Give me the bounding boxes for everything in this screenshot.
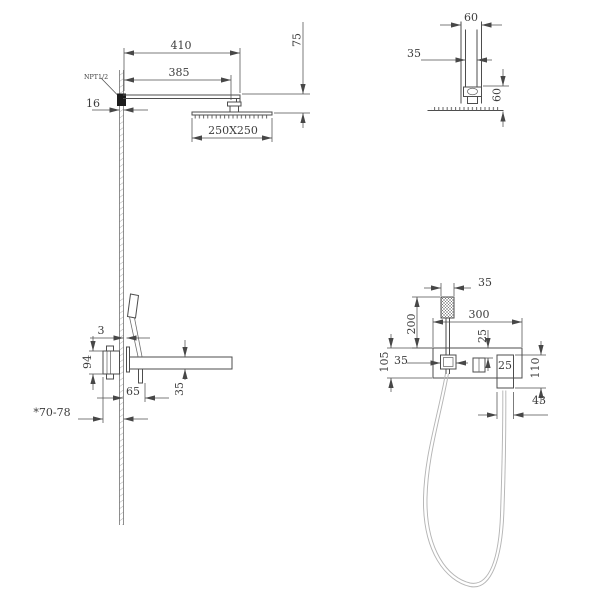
dim-outer-width: 60 bbox=[464, 11, 478, 24]
handle-holder-inner bbox=[444, 358, 454, 367]
dim-elbow-width: 43 bbox=[532, 394, 546, 407]
wall-section bbox=[120, 70, 124, 525]
valve-body bbox=[103, 351, 120, 374]
supply-stub bbox=[107, 374, 114, 379]
dim-arm-length: 410 bbox=[171, 39, 192, 52]
wall-hatch bbox=[120, 70, 124, 525]
dim-spout-height: 35 bbox=[173, 382, 186, 396]
lever-stem bbox=[130, 317, 139, 357]
handle-holder bbox=[441, 355, 457, 369]
lever-stem bbox=[135, 318, 143, 357]
dim-plate-height: 105 bbox=[378, 352, 391, 373]
dim-wall-to-head: 385 bbox=[169, 66, 190, 79]
lever-handle bbox=[128, 294, 139, 318]
rain-shower-dimensions: 410 385 75 16 NPT1/2 250X250 bbox=[84, 22, 310, 142]
head-flange bbox=[228, 102, 242, 106]
dim-wall-thickness: 16 bbox=[86, 97, 100, 110]
trim-plate bbox=[127, 347, 130, 372]
dim-handle-length: 200 bbox=[405, 314, 418, 335]
dim-head-drop: 75 bbox=[291, 33, 304, 47]
dim-pipe-width: 35 bbox=[407, 47, 421, 60]
hand-shower-head bbox=[441, 297, 454, 318]
dim-drop-height: 60 bbox=[491, 88, 504, 102]
dim-outlet-drop: 25 bbox=[476, 329, 489, 343]
dim-in-wall-depth: *70-78 bbox=[33, 406, 70, 419]
dim-spout-reach: 65 bbox=[126, 385, 140, 398]
head-connector bbox=[230, 106, 239, 112]
shower-hose bbox=[427, 374, 503, 584]
dim-elbow-height: 110 bbox=[529, 358, 542, 379]
thread-label: NPT1/2 bbox=[84, 74, 108, 81]
nozzle-ticks bbox=[431, 107, 500, 111]
shower-head-plate bbox=[192, 112, 272, 115]
dim-head-width: 35 bbox=[478, 276, 492, 289]
dim-plate-offset: 3 bbox=[98, 324, 105, 337]
drawing-canvas: 410 385 75 16 NPT1/2 250X250 bbox=[0, 0, 600, 600]
shower-hose bbox=[423, 374, 505, 587]
nozzle-ticks bbox=[194, 115, 270, 119]
head-connector bbox=[468, 97, 478, 104]
flange-detail bbox=[468, 88, 478, 94]
dim-elbow-size: 25 bbox=[498, 359, 512, 372]
hand-shower-front-view bbox=[423, 297, 522, 587]
dim-valve-height: 94 bbox=[81, 355, 94, 369]
supply-stub bbox=[107, 346, 114, 351]
dim-head-size: 250X250 bbox=[208, 124, 258, 137]
rain-shower-side-view bbox=[117, 94, 272, 119]
dim-plate-width: 300 bbox=[469, 308, 490, 321]
dim-holder-width: 35 bbox=[394, 354, 408, 367]
